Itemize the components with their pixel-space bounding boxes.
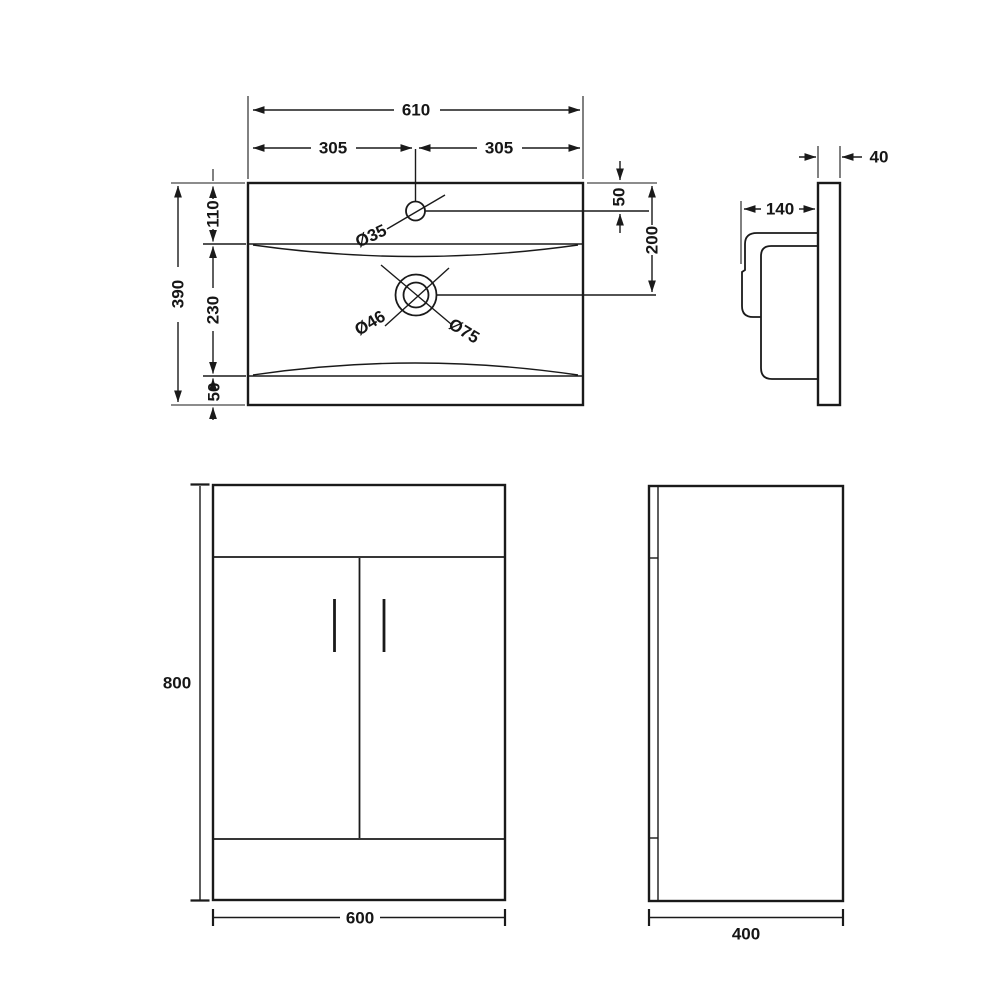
bowl-inner-profile [761,246,818,379]
basin-back-curve [253,363,578,375]
dim-label-waste-offset: 200 [643,226,662,254]
dim-label-back-depth: 50 [205,383,224,402]
vanity-unit-technical-drawing: Ø35 Ø46 Ø75 610 305 305 390 110 230 5 [0,0,1000,1000]
dim-label-left-half-width: 305 [319,139,347,158]
dim-label-bowl-depth: 140 [766,200,794,219]
tap-hole-diameter-label: Ø35 [352,221,389,252]
technical-drawing-canvas: Ø35 Ø46 Ø75 610 305 305 390 110 230 5 [0,0,1000,1000]
dim-label-cabinet-height: 800 [163,674,191,693]
cabinet-side-outline [649,486,843,901]
waste-inner-diameter-label: Ø46 [351,307,388,340]
dim-label-total-depth: 390 [169,280,188,308]
dim-label-tap-offset: 50 [610,188,629,207]
dim-label-panel-thickness: 40 [870,148,889,167]
basin-back-panel [818,183,840,405]
tap-hole [406,202,425,221]
waste-outer-diameter-label: Ø75 [445,315,482,348]
cabinet-front-view: 800 600 [163,485,505,928]
dim-label-cabinet-width: 600 [346,909,374,928]
dim-label-total-width: 610 [402,101,430,120]
dim-label-middle-depth: 230 [204,296,223,324]
cabinet-side-view: 400 [649,486,843,944]
basin-side-view: 40 140 [741,146,888,405]
dim-label-front-depth: 110 [204,200,223,227]
basin-front-curve [253,245,578,257]
basin-plan-view: Ø35 Ø46 Ø75 610 305 305 390 110 230 5 [169,96,662,420]
dim-label-cabinet-depth: 400 [732,925,760,944]
dim-label-right-half-width: 305 [485,139,513,158]
